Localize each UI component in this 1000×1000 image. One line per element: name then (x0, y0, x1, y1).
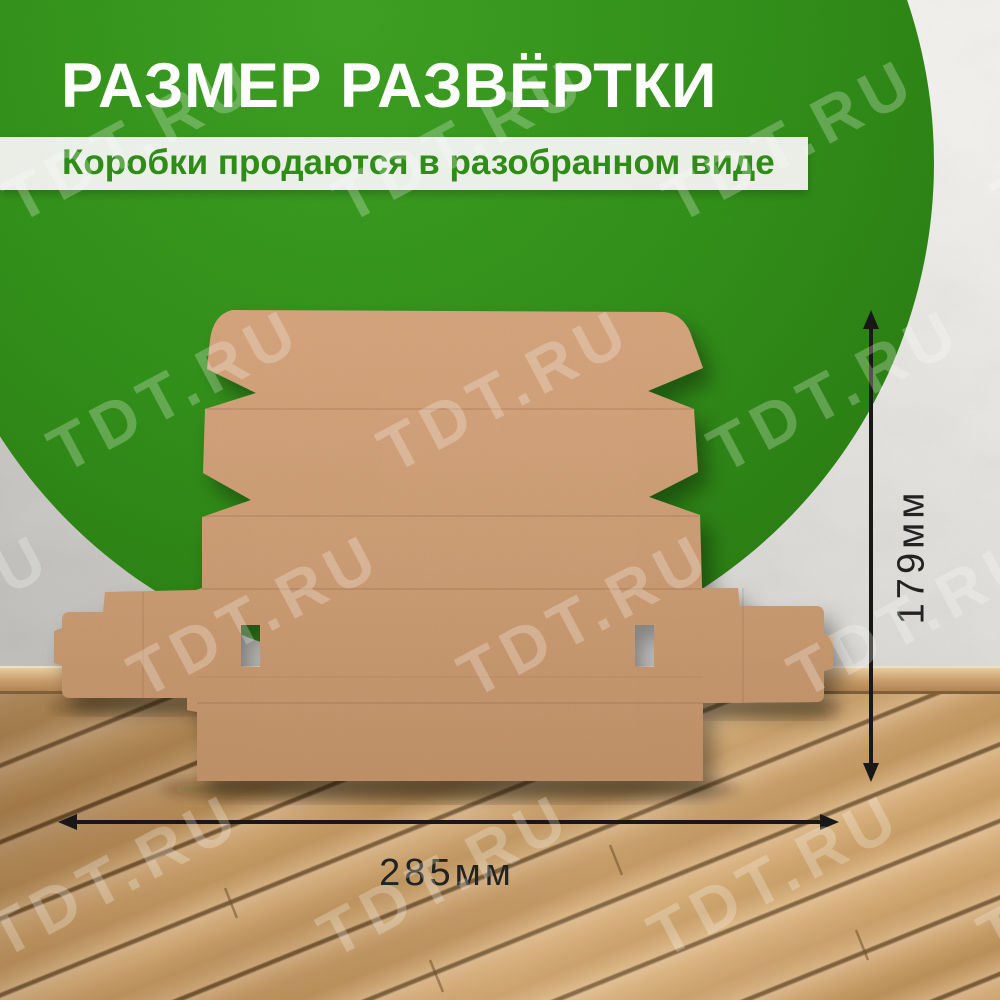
height-dimension-line (869, 326, 873, 763)
page-title: РАЗМЕР РАЗВЁРТКИ (61, 50, 717, 122)
subtitle-banner: Коробки продаются в разобранном виде (0, 137, 808, 190)
arrowhead-down-icon (863, 763, 879, 782)
width-dimension-line (75, 820, 821, 824)
arrowhead-right-icon (820, 814, 839, 830)
width-dimension-label: 285мм (297, 852, 597, 895)
arrowhead-up-icon (863, 310, 879, 329)
height-dimension-label: 179мм (891, 477, 934, 637)
product-image: TDT.RUTDT.RUTDT.RUTDT.RUTDT.RUTDT.RUTDT.… (0, 0, 1000, 1000)
subtitle-text: Коробки продаются в разобранном виде (0, 137, 808, 189)
arrowhead-left-icon (58, 814, 77, 830)
